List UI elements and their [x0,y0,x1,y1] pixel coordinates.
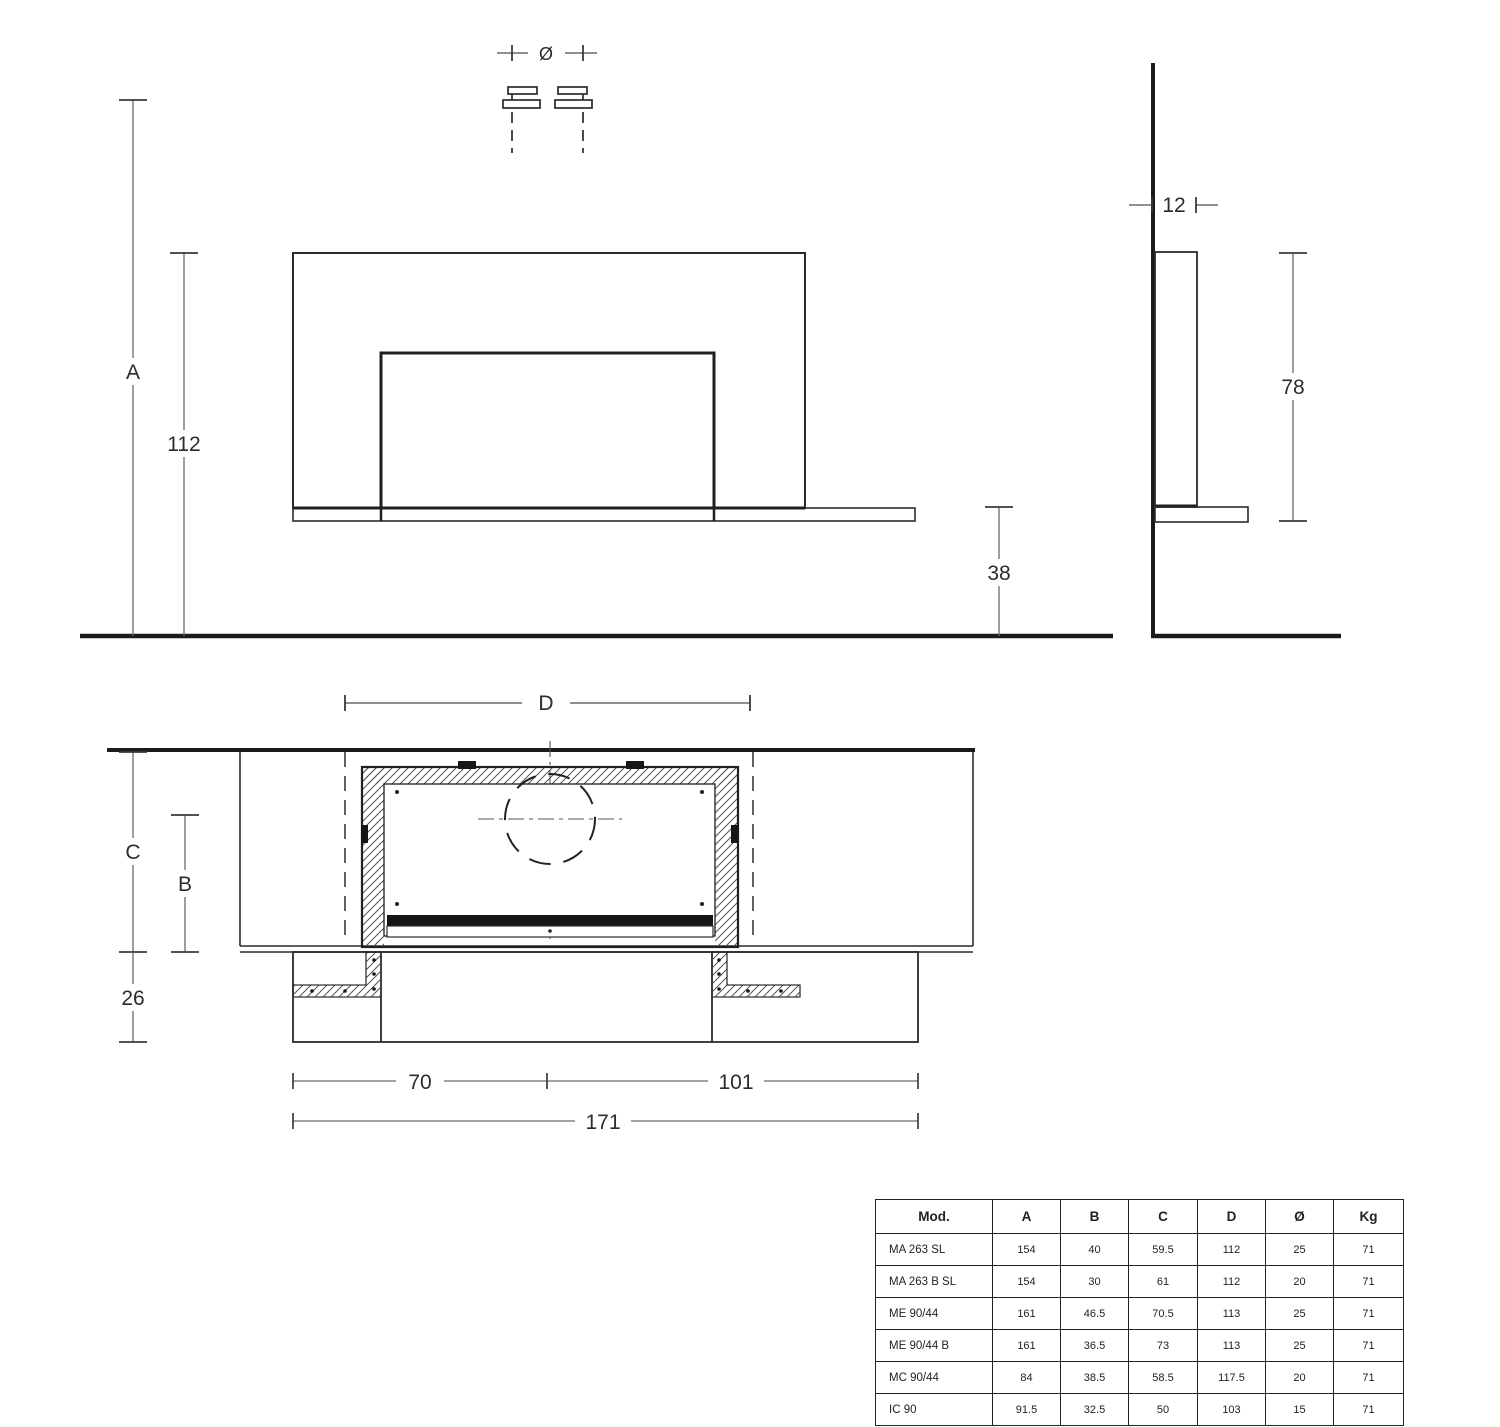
dim-label-D: D [538,692,553,715]
value-a: 154 [993,1266,1061,1298]
value-a: 161 [993,1330,1061,1362]
value-c: 70.5 [1129,1298,1198,1330]
table-row: MC 90/44 84 38.5 58.5 117.5 20 71 [876,1362,1404,1394]
model-name: ME 90/44 B [876,1330,993,1362]
front-back-panel [293,253,805,508]
value-diameter: 20 [1266,1266,1334,1298]
table-row: MA 263 B SL 154 30 61 112 20 71 [876,1266,1404,1298]
technical-drawing-page: Ø A [0,0,1500,1427]
side-section-view: 12 78 38 [976,63,1341,638]
front-firebox [381,353,714,508]
dim-label-C: C [125,841,140,864]
table-row: MA 263 SL 154 40 59.5 112 25 71 [876,1234,1404,1266]
col-header-mod: Mod. [876,1200,993,1234]
value-kg: 71 [1334,1266,1404,1298]
dim-label-171: 171 [585,1111,620,1134]
dim-label-26: 26 [121,987,144,1010]
front-bench [293,508,915,521]
value-d: 112 [1198,1266,1266,1298]
value-kg: 71 [1334,1362,1404,1394]
value-c: 73 [1129,1330,1198,1362]
value-diameter: 15 [1266,1394,1334,1426]
value-b: 40 [1061,1234,1129,1266]
value-c: 61 [1129,1266,1198,1298]
table-row: ME 90/44 161 46.5 70.5 113 25 71 [876,1298,1404,1330]
front-elevation-view: Ø A [80,44,1113,636]
value-a: 154 [993,1234,1061,1266]
value-diameter: 25 [1266,1234,1334,1266]
model-name: MA 263 B SL [876,1266,993,1298]
value-kg: 71 [1334,1394,1404,1426]
dim-label-B: B [178,873,192,896]
col-header-a: A [993,1200,1061,1234]
value-kg: 71 [1334,1298,1404,1330]
value-d: 117.5 [1198,1362,1266,1394]
value-diameter: 25 [1266,1298,1334,1330]
model-name: ME 90/44 [876,1298,993,1330]
dim-label-78: 78 [1281,376,1304,399]
table-row: ME 90/44 B 161 36.5 73 113 25 71 [876,1330,1404,1362]
col-header-d: D [1198,1200,1266,1234]
value-d: 113 [1198,1298,1266,1330]
col-header-c: C [1129,1200,1198,1234]
value-b: 46.5 [1061,1298,1129,1330]
spec-table-header-row: Mod. A B C D Ø Kg [876,1200,1404,1234]
dim-label-12: 12 [1162,194,1185,217]
dim-label-101: 101 [718,1071,753,1094]
value-b: 36.5 [1061,1330,1129,1362]
plan-firebox-frame [361,761,738,947]
value-kg: 71 [1334,1330,1404,1362]
value-diameter: 20 [1266,1362,1334,1394]
plan-bench [293,952,918,1042]
dim-label-38: 38 [987,562,1010,585]
value-c: 50 [1129,1394,1198,1426]
dim-label-A: A [126,361,140,384]
value-b: 30 [1061,1266,1129,1298]
spec-table: Mod. A B C D Ø Kg MA 263 SL 154 40 59.5 … [875,1199,1403,1426]
dim-label-112: 112 [167,433,200,456]
col-header-b: B [1061,1200,1129,1234]
value-a: 161 [993,1298,1061,1330]
model-name: MA 263 SL [876,1234,993,1266]
flue-collar [503,87,592,153]
dim-label-diameter: Ø [539,44,553,64]
value-c: 58.5 [1129,1362,1198,1394]
value-d: 112 [1198,1234,1266,1266]
value-b: 38.5 [1061,1362,1129,1394]
value-kg: 71 [1334,1234,1404,1266]
plan-view: D [107,692,975,1134]
value-a: 91.5 [993,1394,1061,1426]
model-name: IC 90 [876,1394,993,1426]
dim-label-70: 70 [408,1071,431,1094]
side-bench [1155,507,1248,522]
col-header-kg: Kg [1334,1200,1404,1234]
value-d: 103 [1198,1394,1266,1426]
dimension-70-101 [293,1073,918,1089]
col-header-diameter: Ø [1266,1200,1334,1234]
value-d: 113 [1198,1330,1266,1362]
table-row: IC 90 91.5 32.5 50 103 15 71 [876,1394,1404,1426]
model-name: MC 90/44 [876,1362,993,1394]
side-body [1155,252,1197,507]
value-diameter: 25 [1266,1330,1334,1362]
value-c: 59.5 [1129,1234,1198,1266]
plan-support-brackets [293,952,800,997]
value-b: 32.5 [1061,1394,1129,1426]
value-a: 84 [993,1362,1061,1394]
